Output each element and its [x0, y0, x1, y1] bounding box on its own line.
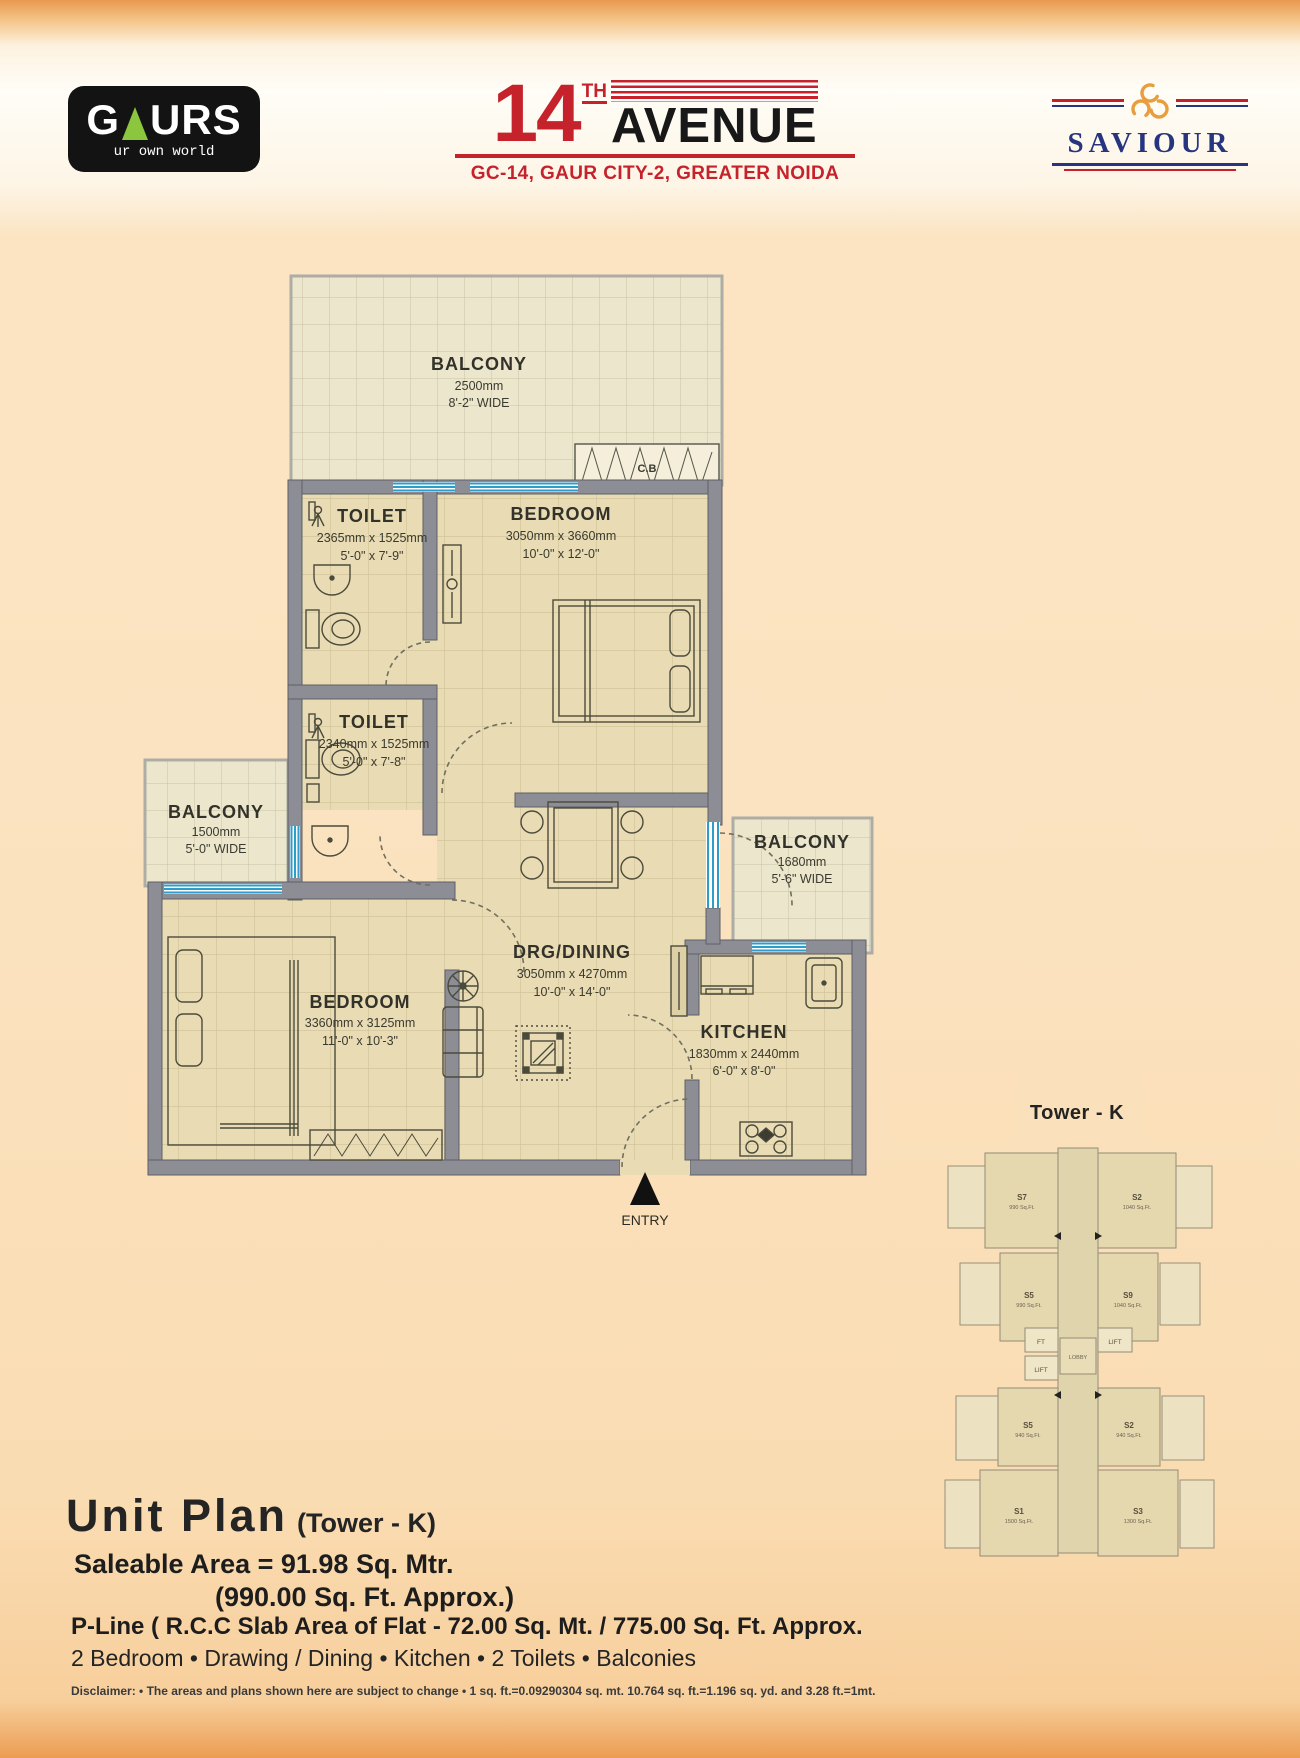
gaurs-tree-icon	[122, 107, 148, 140]
svg-text:5'-0" x 7'-9": 5'-0" x 7'-9"	[341, 549, 404, 563]
window-bedroom-bottom	[164, 884, 282, 894]
svg-text:S3: S3	[1133, 1507, 1143, 1516]
saviour-wordmark: SAVIOUR	[1052, 127, 1248, 160]
svg-text:2365mm x 1525mm: 2365mm x 1525mm	[317, 531, 427, 545]
svg-text:940 Sq.Ft.: 940 Sq.Ft.	[1116, 1433, 1142, 1439]
svg-text:8'-2" WIDE: 8'-2" WIDE	[449, 396, 510, 410]
saviour-logo: SAVIOUR	[1052, 80, 1248, 171]
svg-text:FT: FT	[1037, 1339, 1045, 1346]
svg-text:1830mm x 2440mm: 1830mm x 2440mm	[689, 1047, 799, 1061]
saviour-top-rules	[1052, 80, 1248, 126]
entry-label: ENTRY	[621, 1212, 669, 1228]
saleable-area-line2: (990.00 Sq. Ft. Approx.)	[215, 1582, 514, 1613]
door-toilet2	[380, 835, 430, 885]
label-kitchen: KITCHEN	[701, 1022, 788, 1042]
label-toilet-1: TOILET	[337, 506, 407, 526]
gaurs-wordmark: G URS	[86, 99, 241, 141]
key-plan: S7 990 Sq.Ft. S2 1040 Sq.Ft. S5 990 Sq.F…	[930, 1138, 1220, 1568]
svg-text:1500mm: 1500mm	[192, 825, 241, 839]
room-balcony-left	[145, 760, 288, 886]
svg-text:S7: S7	[1017, 1193, 1027, 1202]
tower-name: (Tower - K)	[297, 1510, 436, 1537]
svg-text:1040 Sq.Ft.: 1040 Sq.Ft.	[1114, 1303, 1143, 1309]
avenue-number: 14	[492, 80, 579, 147]
svg-text:5'-6" WIDE: 5'-6" WIDE	[772, 872, 833, 886]
svg-text:LOBBY: LOBBY	[1069, 1355, 1088, 1361]
unit-features: 2 Bedroom • Drawing / Dining • Kitchen •…	[71, 1645, 696, 1672]
saleable-area-line1: Saleable Area = 91.98 Sq. Mtr.	[74, 1549, 453, 1580]
washbasin-icon-2	[312, 826, 348, 856]
svg-text:2500mm: 2500mm	[455, 379, 504, 393]
label-drg-dining: DRG/DINING	[513, 942, 631, 962]
svg-text:990 Sq.Ft.: 990 Sq.Ft.	[1016, 1303, 1042, 1309]
svg-text:1300 Sq.Ft.: 1300 Sq.Ft.	[1124, 1519, 1153, 1525]
svg-text:10'-0" x 14'-0": 10'-0" x 14'-0"	[534, 985, 611, 999]
floor-plan: C.B	[140, 270, 880, 1230]
svg-text:S5: S5	[1024, 1291, 1034, 1300]
page-title: Unit Plan	[66, 1496, 288, 1537]
svg-text:5'-0" x 7'-8": 5'-0" x 7'-8"	[343, 755, 406, 769]
saviour-pinwheel-icon	[1127, 80, 1173, 126]
avenue-address: GC-14, GAUR CITY-2, GREATER NOIDA	[455, 163, 855, 185]
svg-text:3050mm x 4270mm: 3050mm x 4270mm	[517, 967, 627, 981]
svg-text:940 Sq.Ft.: 940 Sq.Ft.	[1015, 1433, 1041, 1439]
label-balcony-left: BALCONY	[168, 802, 264, 822]
key-plan-title: Tower - K	[977, 1102, 1177, 1125]
fan-icon	[448, 971, 478, 1001]
avenue-wordmark: 14 TH AVENUE	[455, 80, 855, 151]
saviour-bottom-rule-navy	[1052, 163, 1248, 166]
window-balcony-door	[706, 822, 720, 908]
label-toilet-2: TOILET	[339, 712, 409, 732]
saviour-bottom-rule-red	[1064, 169, 1236, 172]
window-bedroom-top	[470, 482, 578, 492]
svg-text:2340mm x 1525mm: 2340mm x 1525mm	[319, 737, 429, 751]
unit-plan-heading: Unit Plan (Tower - K)	[66, 1496, 436, 1537]
svg-text:S5: S5	[1023, 1421, 1033, 1430]
pline-area: P-Line ( R.C.C Slab Area of Flat - 72.00…	[71, 1613, 863, 1641]
gaurs-logo: G URS ur own world	[68, 86, 260, 172]
gaurs-part1: G	[86, 99, 120, 141]
svg-text:11'-0" x 10'-3": 11'-0" x 10'-3"	[322, 1034, 398, 1048]
window-toilet2	[290, 826, 300, 878]
label-bedroom-bottom: BEDROOM	[310, 992, 411, 1012]
svg-text:10'-0" x 12'-0": 10'-0" x 12'-0"	[523, 547, 600, 561]
window-kitchen	[752, 942, 806, 952]
svg-text:S2: S2	[1124, 1421, 1134, 1430]
svg-text:1500 Sq.Ft.: 1500 Sq.Ft.	[1005, 1519, 1034, 1525]
svg-text:1680mm: 1680mm	[778, 855, 827, 869]
svg-text:S2: S2	[1132, 1193, 1142, 1202]
gaurs-part2: URS	[150, 99, 242, 141]
svg-text:990 Sq.Ft.: 990 Sq.Ft.	[1009, 1205, 1035, 1211]
svg-text:S9: S9	[1123, 1291, 1133, 1300]
unit-plan-brochure: G URS ur own world 14 TH AVENUE GC-14, G…	[0, 0, 1300, 1758]
entry-marker: ENTRY	[621, 1172, 669, 1228]
tall-cabinet-icon	[671, 946, 687, 1016]
svg-text:1040 Sq.Ft.: 1040 Sq.Ft.	[1123, 1205, 1152, 1211]
svg-text:3360mm x 3125mm: 3360mm x 3125mm	[305, 1016, 415, 1030]
label-balcony-top: BALCONY	[431, 354, 527, 374]
disclaimer: Disclaimer: • The areas and plans shown …	[71, 1684, 875, 1698]
label-balcony-right: BALCONY	[754, 832, 850, 852]
svg-text:6'-0" x 8'-0": 6'-0" x 8'-0"	[713, 1064, 776, 1078]
svg-text:5'-0" WIDE: 5'-0" WIDE	[186, 842, 247, 856]
fourteenth-avenue-logo: 14 TH AVENUE GC-14, GAUR CITY-2, GREATER…	[455, 80, 855, 185]
avenue-word: AVENUE	[611, 102, 818, 151]
svg-text:3050mm x 3660mm: 3050mm x 3660mm	[506, 529, 616, 543]
svg-text:LIFT: LIFT	[1108, 1339, 1121, 1346]
window-toilet1	[393, 482, 455, 492]
avenue-ordinal: TH	[582, 82, 607, 104]
cupboard-label: C.B	[638, 463, 657, 475]
svg-text:LIFT: LIFT	[1034, 1367, 1047, 1374]
gaurs-tagline: ur own world	[114, 144, 215, 160]
svg-text:S1: S1	[1014, 1507, 1024, 1516]
label-bedroom-top: BEDROOM	[511, 504, 612, 524]
